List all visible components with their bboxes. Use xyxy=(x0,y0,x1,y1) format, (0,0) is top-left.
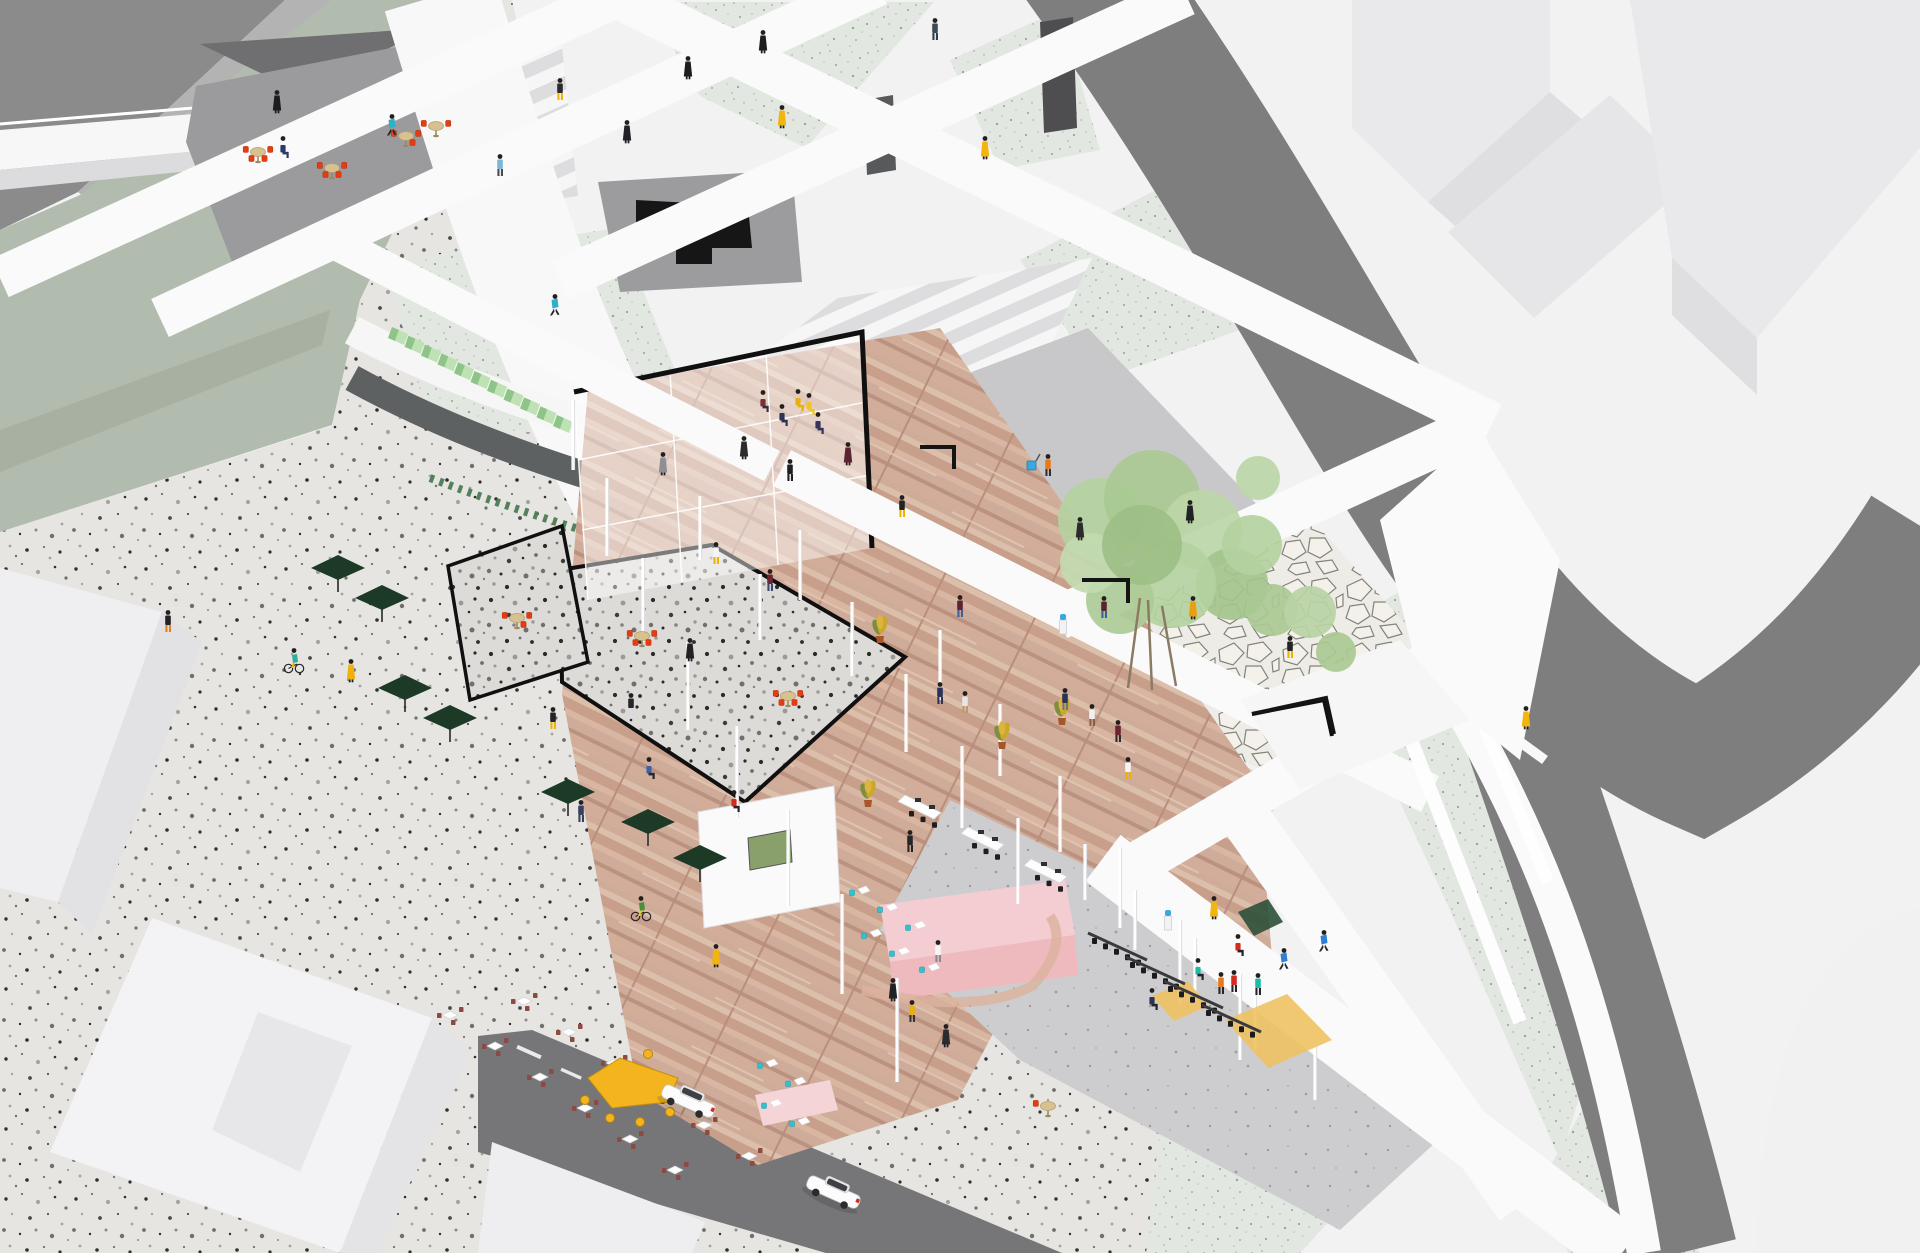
plant-pot xyxy=(864,800,872,807)
person-head xyxy=(958,595,963,600)
person-head xyxy=(1191,596,1196,601)
office-chair xyxy=(995,854,1000,860)
cafe-table xyxy=(510,614,525,623)
maroon-chair xyxy=(570,1037,575,1042)
person-head xyxy=(780,404,785,409)
person-head xyxy=(714,542,719,547)
person-head xyxy=(349,659,354,664)
maroon-chair xyxy=(451,1020,456,1025)
person-head xyxy=(1524,706,1529,711)
column xyxy=(698,496,701,560)
table-base xyxy=(514,627,520,629)
person-head xyxy=(908,830,913,835)
plant-pot xyxy=(998,742,1006,749)
office-chair xyxy=(1228,1021,1233,1027)
column xyxy=(571,400,574,470)
water-bottle xyxy=(1060,614,1066,620)
red-chair xyxy=(779,699,784,705)
office-chair xyxy=(1239,1026,1244,1032)
cafe-table xyxy=(1041,1102,1056,1111)
plant-pot xyxy=(1058,718,1066,725)
person-head xyxy=(910,1000,915,1005)
column xyxy=(1083,844,1086,900)
office-chair xyxy=(1190,997,1195,1003)
cleaning-cart xyxy=(1027,461,1036,470)
monitor xyxy=(978,830,984,834)
person-head xyxy=(788,459,793,464)
column-shade xyxy=(1019,818,1020,904)
monitor xyxy=(992,837,998,841)
person-head xyxy=(1232,970,1237,975)
red-chair xyxy=(317,162,322,168)
office-chair xyxy=(1114,949,1119,955)
maroon-chair xyxy=(691,1123,696,1128)
maroon-chair xyxy=(549,1069,554,1074)
maroon-chair xyxy=(578,1024,583,1029)
maroon-chair xyxy=(594,1100,599,1105)
person-head xyxy=(780,105,785,110)
red-chair xyxy=(798,690,803,696)
table-base xyxy=(329,177,335,179)
person-head xyxy=(639,896,644,901)
teal-chair xyxy=(790,1121,795,1127)
plant-leaves xyxy=(999,721,1006,735)
person-head xyxy=(732,790,737,795)
column-shade xyxy=(963,746,964,828)
tree-canopy xyxy=(1284,586,1336,638)
office-chair xyxy=(1058,886,1063,892)
column xyxy=(1058,776,1061,852)
teal-chair xyxy=(786,1081,791,1087)
maroon-chair xyxy=(705,1130,710,1135)
cafe-table xyxy=(399,132,414,141)
person-head xyxy=(579,800,584,805)
maroon-chair xyxy=(496,1051,501,1056)
cafe-table xyxy=(251,148,266,157)
column-shade xyxy=(761,574,762,640)
office-chair xyxy=(932,822,937,828)
cafe-table xyxy=(429,122,444,131)
person-head xyxy=(963,691,968,696)
red-chair xyxy=(627,630,632,636)
person-head xyxy=(390,114,395,119)
red-chair xyxy=(502,612,507,618)
person-head xyxy=(1150,988,1155,993)
red-chair xyxy=(527,612,532,618)
cafe-table xyxy=(325,164,340,173)
person-head xyxy=(1322,930,1327,935)
column xyxy=(758,574,761,640)
column xyxy=(1118,848,1121,928)
maroon-chair xyxy=(639,1131,644,1136)
teal-chair xyxy=(920,967,925,973)
monitor xyxy=(915,798,921,802)
person-head xyxy=(275,90,280,95)
person-head xyxy=(768,569,773,574)
column xyxy=(641,558,644,642)
column xyxy=(850,602,853,676)
office-chair xyxy=(1179,991,1184,997)
person-head xyxy=(933,18,938,23)
office-chair xyxy=(1206,1010,1211,1016)
column xyxy=(786,810,789,906)
person-head xyxy=(1116,720,1121,725)
office-chair xyxy=(1092,938,1097,944)
person-head xyxy=(816,412,821,417)
water-bottle xyxy=(1165,910,1171,916)
maroon-chair xyxy=(684,1162,689,1167)
person-head xyxy=(551,707,556,712)
teal-chair xyxy=(850,890,855,896)
canteen-stool xyxy=(636,1118,645,1127)
person-head xyxy=(846,442,851,447)
tree-canopy xyxy=(1236,456,1280,500)
person-head xyxy=(1196,958,1201,963)
office-chair xyxy=(1047,881,1052,887)
column-shade xyxy=(644,558,645,642)
maroon-chair xyxy=(586,1113,591,1118)
person-head xyxy=(1288,636,1293,641)
teal-chair xyxy=(878,907,883,913)
table-base xyxy=(785,705,791,707)
cafe-table xyxy=(781,692,796,701)
person-head xyxy=(1063,688,1068,693)
person-head xyxy=(553,294,558,299)
column xyxy=(1016,818,1019,904)
office-chair xyxy=(1217,1015,1222,1021)
column-shade xyxy=(789,810,790,906)
person-head xyxy=(625,120,630,125)
person-head xyxy=(1256,973,1261,978)
person-head xyxy=(944,1024,949,1029)
teal-chair xyxy=(906,925,911,931)
column xyxy=(904,674,907,752)
cafe-table xyxy=(635,632,650,641)
red-chair xyxy=(342,162,347,168)
maroon-chair xyxy=(459,1007,464,1012)
office-chair xyxy=(921,817,926,823)
column-shade xyxy=(1136,890,1137,950)
monitor xyxy=(929,805,935,809)
maroon-chair xyxy=(631,1144,636,1149)
red-chair xyxy=(336,171,341,177)
person-head xyxy=(688,638,693,643)
column-shade xyxy=(738,726,739,818)
canteen-stool xyxy=(581,1096,590,1105)
person-head xyxy=(661,452,666,457)
maroon-chair xyxy=(527,1075,532,1080)
person-head xyxy=(1282,948,1287,953)
table-base xyxy=(433,135,439,137)
column xyxy=(840,894,843,994)
maroon-chair xyxy=(525,1006,530,1011)
column-shade xyxy=(1061,776,1062,852)
office-chair xyxy=(1168,986,1173,992)
water-cooler xyxy=(1165,916,1172,930)
column-shade xyxy=(574,400,575,470)
red-chair xyxy=(773,690,778,696)
person-head xyxy=(983,136,988,141)
person-head xyxy=(714,944,719,949)
monitor xyxy=(1055,869,1061,873)
person-head xyxy=(891,978,896,983)
table-base xyxy=(639,645,645,647)
tree-canopy xyxy=(1102,505,1182,585)
office-chair xyxy=(1103,943,1108,949)
person-head xyxy=(936,940,941,945)
column-shade xyxy=(853,602,854,676)
person-head xyxy=(686,56,691,61)
teal-chair xyxy=(758,1063,763,1069)
red-chair xyxy=(446,120,451,126)
person-head xyxy=(558,78,563,83)
person-head xyxy=(498,154,503,159)
plant-leaves xyxy=(877,615,884,629)
column-shade xyxy=(701,496,702,560)
column xyxy=(960,746,963,828)
maroon-chair xyxy=(736,1154,741,1159)
person-head xyxy=(1236,934,1241,939)
maroon-chair xyxy=(572,1106,577,1111)
person-head xyxy=(1046,454,1051,459)
maroon-chair xyxy=(662,1168,667,1173)
monitor xyxy=(1041,862,1047,866)
red-chair xyxy=(652,630,657,636)
person-head xyxy=(938,682,943,687)
red-chair xyxy=(416,130,421,136)
illustration-stage xyxy=(0,0,1920,1253)
person-head xyxy=(807,393,812,398)
person-head xyxy=(900,495,905,500)
canteen-stool xyxy=(644,1050,653,1059)
column xyxy=(1133,890,1136,950)
office-chair xyxy=(972,843,977,849)
teal-chair xyxy=(762,1103,767,1109)
maroon-chair xyxy=(437,1013,442,1018)
person-head xyxy=(761,30,766,35)
person-head xyxy=(1126,757,1131,762)
teal-chair xyxy=(890,951,895,957)
maroon-chair xyxy=(533,993,538,998)
column-shade xyxy=(1086,844,1087,900)
office-chair xyxy=(1250,1032,1255,1038)
person-head xyxy=(761,390,766,395)
red-chair xyxy=(792,699,797,705)
red-chair xyxy=(262,155,267,161)
person-head xyxy=(742,436,747,441)
red-chair xyxy=(633,639,638,645)
office-chair xyxy=(1130,962,1135,968)
tree-canopy xyxy=(1316,632,1356,672)
office-chair xyxy=(1152,973,1157,979)
maroon-chair xyxy=(676,1175,681,1180)
office-chair xyxy=(1035,875,1040,881)
person-head xyxy=(1219,972,1224,977)
column-shade xyxy=(1121,848,1122,928)
person-head xyxy=(1212,896,1217,901)
person-head xyxy=(281,136,286,141)
person-head xyxy=(292,648,297,653)
maroon-chair xyxy=(511,999,516,1004)
office-chair xyxy=(1141,967,1146,973)
column xyxy=(798,530,801,600)
column xyxy=(605,478,608,556)
person-head xyxy=(166,610,171,615)
maroon-chair xyxy=(482,1044,487,1049)
person-head xyxy=(629,693,634,698)
person-head xyxy=(1102,596,1107,601)
maroon-chair xyxy=(556,1030,561,1035)
column-shade xyxy=(843,894,844,994)
office-chair xyxy=(909,811,914,817)
person-head xyxy=(796,389,801,394)
red-chair xyxy=(1033,1100,1038,1106)
person-head xyxy=(1090,704,1095,709)
column-shade xyxy=(801,530,802,600)
column-shade xyxy=(898,978,899,1082)
maroon-chair xyxy=(713,1117,718,1122)
axonometric-scene xyxy=(0,0,1920,1253)
maroon-chair xyxy=(541,1082,546,1087)
person-head xyxy=(1188,500,1193,505)
canteen-stool xyxy=(606,1114,615,1123)
red-chair xyxy=(410,139,415,145)
maroon-chair xyxy=(504,1038,509,1043)
plant-leaves xyxy=(865,779,872,793)
maroon-chair xyxy=(601,1061,606,1066)
table-base xyxy=(403,145,409,147)
teal-chair xyxy=(862,933,867,939)
table-base xyxy=(255,161,261,163)
person-head xyxy=(647,757,652,762)
red-chair xyxy=(521,621,526,627)
tree-canopy xyxy=(1222,515,1282,575)
plant-pot xyxy=(876,636,884,643)
column-shade xyxy=(608,478,609,556)
red-chair xyxy=(646,639,651,645)
maroon-chair xyxy=(617,1137,622,1142)
water-cooler xyxy=(1060,620,1067,634)
office-chair xyxy=(984,849,989,855)
column-shade xyxy=(907,674,908,752)
red-chair xyxy=(323,171,328,177)
red-chair xyxy=(249,155,254,161)
maroon-chair xyxy=(750,1161,755,1166)
red-chair xyxy=(421,120,426,126)
person-head xyxy=(1078,517,1083,522)
red-chair xyxy=(243,146,248,152)
red-chair xyxy=(268,146,273,152)
table-base xyxy=(1045,1115,1051,1117)
maroon-chair xyxy=(758,1148,763,1153)
